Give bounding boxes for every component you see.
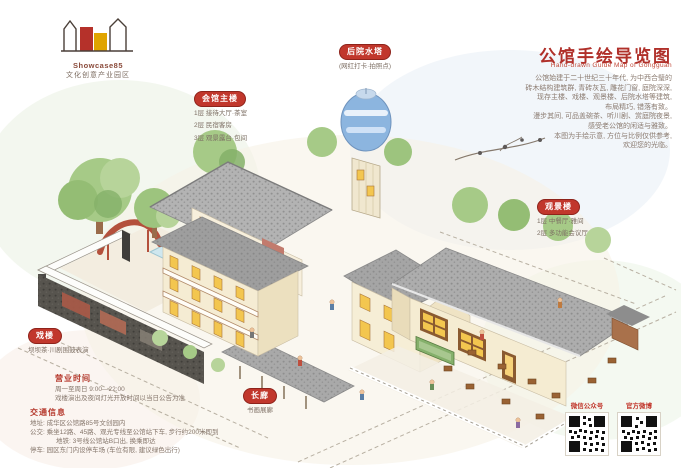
wechat-qr-label: 微信公众号 xyxy=(565,400,609,410)
page-subtitle: Hand-drawn Guide Map of Gongguan xyxy=(551,62,672,69)
intro-paragraph: 公馆始建于二十世纪三十年代, 为中西合璧的 砖木结构建筑群, 青砖灰瓦, 雕花门… xyxy=(362,74,672,151)
main-building-floor: 1层 接待大厅·茶室 xyxy=(194,109,247,120)
traffic-line: 地址: 成华区公馆路85号文创园内 xyxy=(30,419,219,428)
intro-line: 现存主楼、戏楼、观景楼、后院水塔等建筑, xyxy=(362,93,672,103)
intro-line: 感受老公馆的闲适与雅致。 xyxy=(362,122,672,132)
traffic-line: 地铁: 3号线公馆站B口出, 换乘即达 xyxy=(30,437,219,446)
water-tower-pill: 后院水塔 xyxy=(339,44,391,60)
intro-line: 砖木结构建筑群, 青砖灰瓦, 雕花门窗, 庭院深深, xyxy=(362,84,672,94)
water-tower-note: (网红打卡·拍照点) xyxy=(322,62,408,73)
label-view-tower: 观景楼 1层 中餐厅·雅间 2层 多功能会议厅 xyxy=(537,196,588,240)
hours-line: 周一至周日 9:00—22:00 xyxy=(55,385,185,394)
main-building-floor: 2层 民宿客房 xyxy=(194,121,247,132)
logo-name: Showcase85 xyxy=(50,61,146,70)
traffic-heading: 交通信息 xyxy=(30,408,219,417)
traffic-info-block: 交通信息 地址: 成华区公馆路85号文创园内 公交: 乘坐12路、45路、观光专… xyxy=(30,408,219,455)
main-building-floor: 3层 观景露台·包间 xyxy=(194,134,247,145)
qr-icon xyxy=(618,413,660,455)
logo-subname: 文化创意产业园区 xyxy=(50,70,146,80)
label-water-tower: 后院水塔 (网红打卡·拍照点) xyxy=(322,41,408,72)
view-tower-floor: 2层 多功能会议厅 xyxy=(537,229,588,240)
weibo-qr-label: 官方微博 xyxy=(617,400,661,410)
label-main-building: 会馆主楼 1层 接待大厅·茶室 2层 民宿客房 3层 观景露台·包间 xyxy=(194,88,247,144)
park-logo: Showcase85 文化创意产业园区 xyxy=(50,13,146,80)
intro-line: 本图为手绘示意, 方位与比例仅供参考, xyxy=(362,132,672,142)
logo-buildings-icon xyxy=(60,13,136,55)
corridor-pill: 长廊 xyxy=(243,388,277,404)
intro-line: 漫步其间, 可品盖碗茶、听川剧、赏庭院夜景, xyxy=(362,112,672,122)
guide-map-poster: Showcase85 文化创意产业园区 公馆手绘导览图 Hand-drawn G… xyxy=(0,0,681,468)
view-tower-pill: 观景楼 xyxy=(537,199,580,215)
wechat-qr-block: 微信公众号 xyxy=(565,400,609,460)
intro-line: 公馆始建于二十世纪三十年代, 为中西合璧的 xyxy=(362,74,672,84)
label-stage: 戏楼 坝坝茶·川剧围鼓表演 xyxy=(28,325,89,356)
corridor-note: 书画展廊 xyxy=(230,406,290,417)
intro-line: 欢迎您的光临。 xyxy=(362,141,672,151)
hours-line: 戏楼演出及夜间灯光开放时间以当日公告为准 xyxy=(55,394,185,403)
intro-line: 布局精巧, 错落有致。 xyxy=(362,103,672,113)
traffic-line: 停车: 园区东门内设停车场 (车位有限, 建议绿色出行) xyxy=(30,446,219,455)
stage-note: 坝坝茶·川剧围鼓表演 xyxy=(28,346,89,357)
label-corridor: 长廊 书画展廊 xyxy=(230,385,290,416)
wechat-qr-code xyxy=(565,412,609,456)
weibo-qr-block: 官方微博 xyxy=(617,400,661,460)
opening-hours-block: 营业时间 周一至周日 9:00—22:00 戏楼演出及夜间灯光开放时间以当日公告… xyxy=(55,374,185,403)
qr-icon xyxy=(566,413,608,455)
traffic-line: 公交: 乘坐12路、45路、观光专线至公馆站下车, 步行约200米即到 xyxy=(30,428,219,437)
main-building-pill: 会馆主楼 xyxy=(194,91,246,107)
hours-heading: 营业时间 xyxy=(55,374,185,383)
stage-pill: 戏楼 xyxy=(28,328,62,344)
weibo-qr-code xyxy=(617,412,661,456)
view-tower-floor: 1层 中餐厅·雅间 xyxy=(537,217,588,228)
